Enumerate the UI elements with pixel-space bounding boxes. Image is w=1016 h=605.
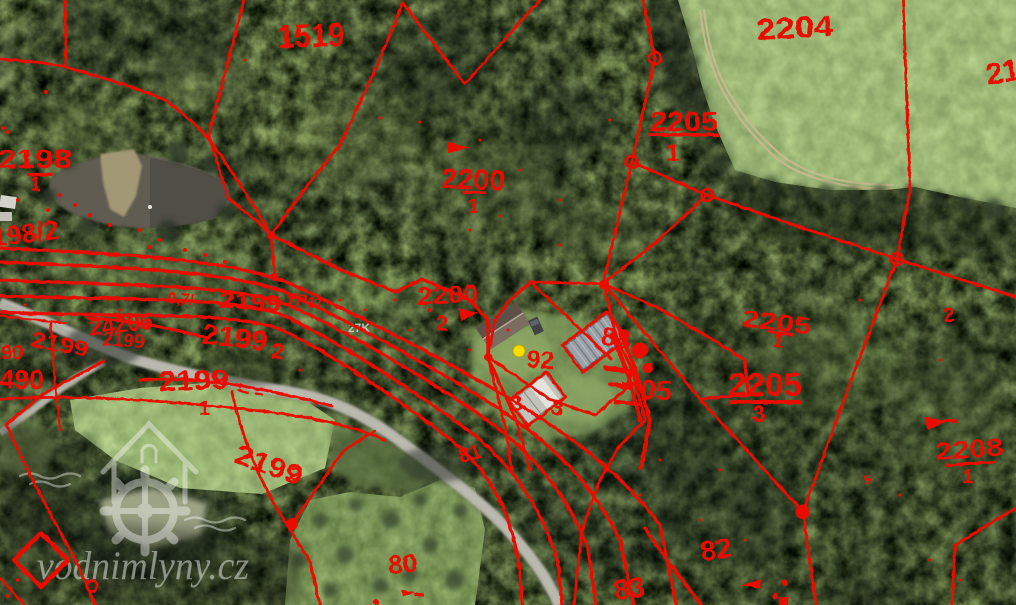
svg-text:2: 2 <box>436 311 448 336</box>
svg-text:2199: 2199 <box>219 287 283 316</box>
svg-text:2205: 2205 <box>728 366 802 403</box>
svg-text:88: 88 <box>599 320 633 355</box>
svg-text:83: 83 <box>612 571 647 605</box>
svg-text:2199: 2199 <box>102 329 146 353</box>
svg-text:1: 1 <box>30 174 41 196</box>
svg-text:3: 3 <box>752 401 765 428</box>
svg-text:82: 82 <box>699 532 734 567</box>
svg-text:2: 2 <box>943 304 956 327</box>
svg-text:92: 92 <box>526 345 556 375</box>
svg-text:21: 21 <box>983 54 1016 92</box>
svg-text:2198: 2198 <box>0 144 72 174</box>
svg-text:2199: 2199 <box>158 364 229 397</box>
svg-text:0,7/: 0,7/ <box>167 290 196 309</box>
svg-text:1: 1 <box>468 196 479 218</box>
svg-text:2205: 2205 <box>650 106 718 137</box>
svg-text:1: 1 <box>666 140 679 167</box>
svg-text:1: 1 <box>962 466 973 488</box>
svg-text:2200: 2200 <box>417 280 479 311</box>
svg-text:80: 80 <box>387 548 418 580</box>
svg-text:2204: 2204 <box>756 10 835 47</box>
svg-text:05: 05 <box>640 374 673 407</box>
svg-text:190: 190 <box>0 342 23 364</box>
svg-text:1: 1 <box>199 398 210 420</box>
svg-text:2490: 2490 <box>0 364 44 395</box>
svg-text:1519: 1519 <box>277 16 345 55</box>
